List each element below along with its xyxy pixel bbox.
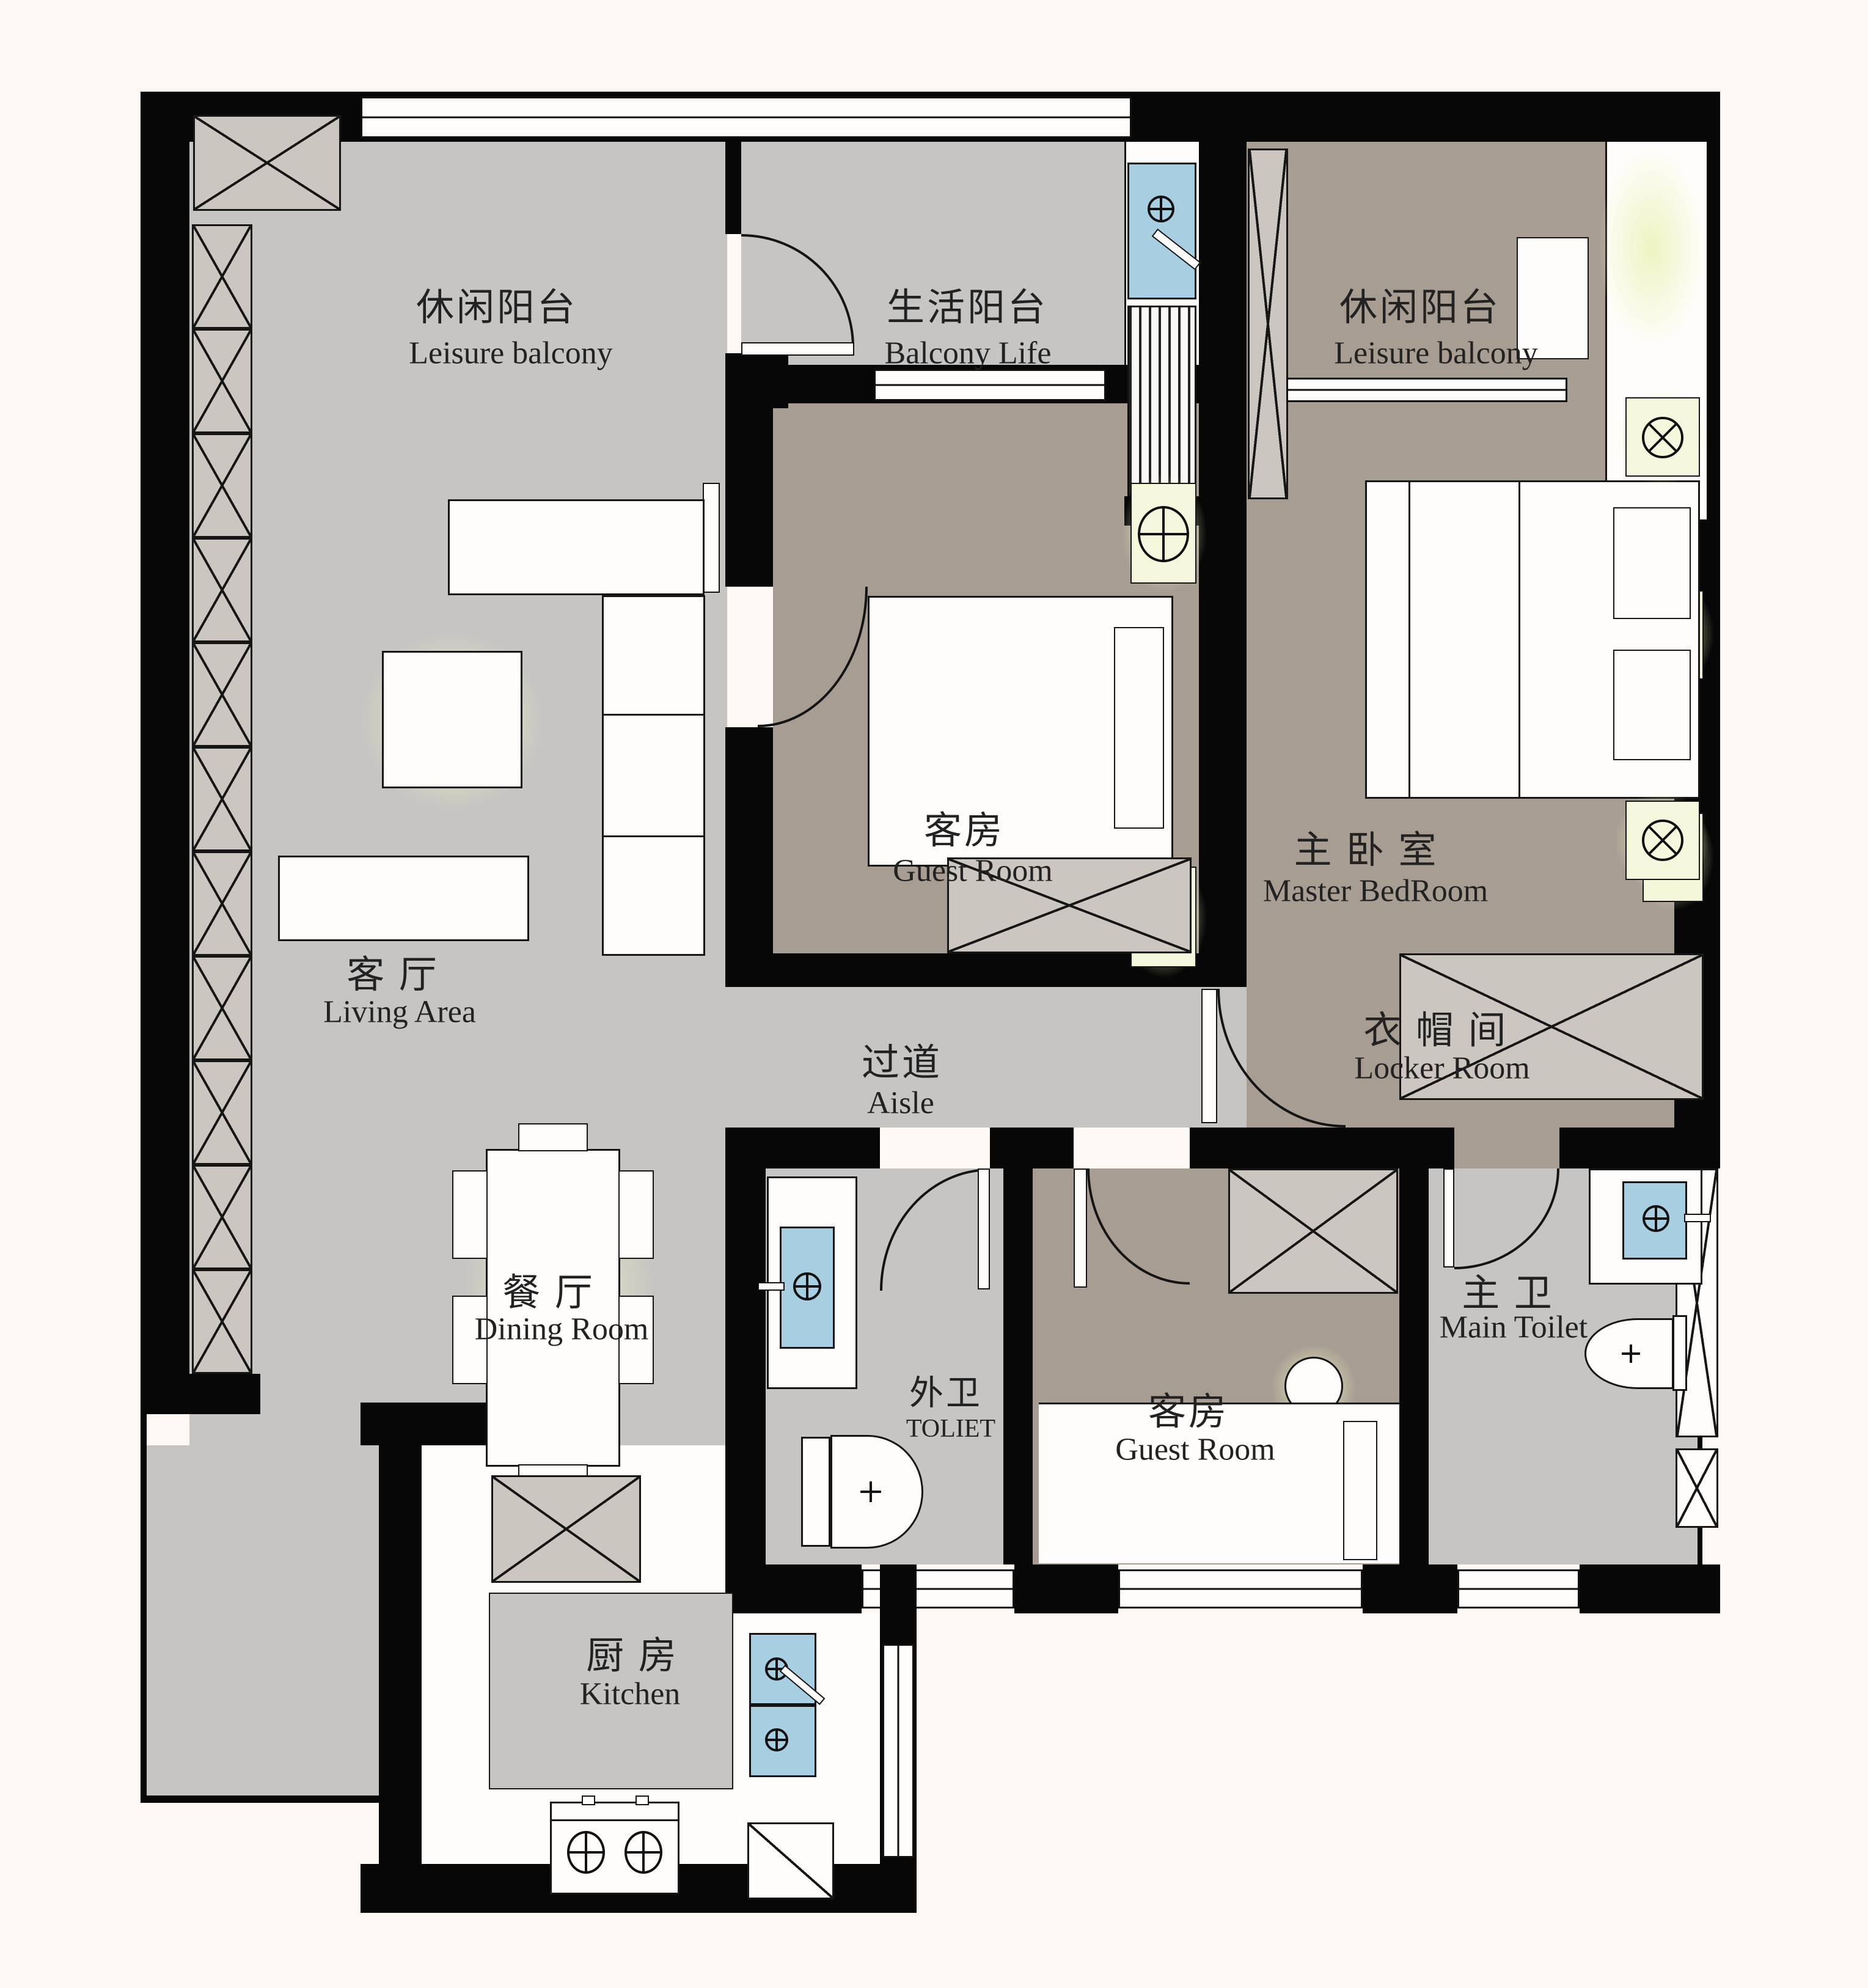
room-label-en: Leisure balcony bbox=[409, 336, 613, 372]
balcony-partition-wall bbox=[725, 142, 741, 234]
burner-icon bbox=[567, 1831, 605, 1874]
living-area-floor-lower bbox=[141, 1445, 379, 1800]
left-wall bbox=[141, 92, 189, 1395]
room-label-zh: 过道 bbox=[862, 1032, 942, 1087]
storage-box bbox=[192, 224, 252, 329]
coffee-table bbox=[382, 651, 522, 788]
faucet-icon bbox=[765, 1728, 788, 1751]
storage-box bbox=[192, 1165, 252, 1269]
sofa-top-section bbox=[448, 499, 705, 595]
bed-line bbox=[1408, 482, 1410, 797]
dining-chair bbox=[518, 1123, 588, 1151]
hall-south-wall-a bbox=[725, 1128, 880, 1168]
guest2-maintoilet-wall bbox=[1399, 1168, 1429, 1564]
kitchen-east-window bbox=[882, 1644, 914, 1858]
left-wall-lower-line bbox=[141, 1414, 147, 1803]
room-label-zh: 主 卫 bbox=[1462, 1262, 1555, 1317]
storage-box bbox=[192, 1060, 252, 1165]
tap-icon bbox=[1684, 1214, 1711, 1222]
toilet-guest2-wall bbox=[1003, 1168, 1033, 1564]
faucet-icon bbox=[1148, 196, 1174, 222]
room-label-zh: 休闲阳台 bbox=[1339, 276, 1501, 331]
bottom-wall-seg4 bbox=[1580, 1564, 1720, 1613]
storage-box bbox=[192, 1269, 252, 1374]
shaft-small bbox=[1676, 1448, 1718, 1528]
faucet-icon bbox=[793, 1272, 821, 1300]
room-label-en: Kitchen bbox=[580, 1676, 681, 1712]
room-label-en: Main Toilet bbox=[1440, 1310, 1588, 1346]
storage-box-large bbox=[193, 115, 341, 211]
sofa-side-section bbox=[602, 595, 705, 956]
room-label-zh: 厨 房 bbox=[586, 1624, 679, 1679]
room-label-en: Locker Room bbox=[1354, 1051, 1529, 1087]
storage-box bbox=[192, 538, 252, 642]
room-label-zh: 休闲阳台 bbox=[416, 276, 577, 331]
guest1-west-wall-upper bbox=[725, 403, 773, 587]
balcony-column-hatch bbox=[1248, 149, 1288, 499]
main-toilet-door-leaf bbox=[1443, 1168, 1454, 1267]
tv-console bbox=[278, 856, 529, 941]
guest2-nightstand bbox=[1343, 1421, 1377, 1560]
main-toilet-tank bbox=[1672, 1315, 1687, 1391]
toilet-tank bbox=[801, 1437, 830, 1547]
guest1-west-wall-lower bbox=[725, 727, 773, 987]
room-label-en: Balcony Life bbox=[885, 336, 1052, 372]
lamp-icon bbox=[1138, 506, 1189, 562]
room-label-en: TOLIET bbox=[906, 1414, 995, 1443]
hall-south-wall-d bbox=[1559, 1128, 1720, 1168]
lamp-icon bbox=[1642, 417, 1683, 458]
room-label-en: Living Area bbox=[323, 994, 476, 1030]
stove-knob bbox=[582, 1795, 595, 1805]
dining-chair bbox=[452, 1170, 488, 1259]
guest2-wardrobe bbox=[1228, 1168, 1398, 1294]
storage-box bbox=[192, 433, 252, 538]
room-label-en: Dining Room bbox=[475, 1311, 649, 1348]
room-label-zh: 客房 bbox=[924, 799, 1005, 854]
storage-box bbox=[192, 956, 252, 1060]
guest2-door-leaf bbox=[1074, 1168, 1087, 1288]
tap-icon bbox=[758, 1282, 785, 1291]
bottom-left-line bbox=[141, 1795, 385, 1803]
dining-chair bbox=[618, 1170, 654, 1259]
bottom-window2 bbox=[1118, 1569, 1363, 1608]
kitchen-west-wall bbox=[379, 1403, 422, 1913]
storage-box bbox=[192, 747, 252, 851]
room-label-en: Aisle bbox=[867, 1085, 934, 1121]
storage-box bbox=[192, 642, 252, 747]
room-label-zh: 主 卧 室 bbox=[1294, 819, 1438, 874]
bottom-window3 bbox=[1457, 1569, 1580, 1608]
bottom-wall-seg2 bbox=[1014, 1564, 1118, 1613]
flush-icon bbox=[1622, 1344, 1640, 1363]
guest1-door-leaf bbox=[703, 483, 720, 593]
guest1-pillow bbox=[1114, 627, 1164, 829]
balcony-door-leaf bbox=[741, 342, 854, 356]
room-label-zh: 生活阳台 bbox=[887, 276, 1048, 331]
fridge bbox=[491, 1475, 641, 1583]
kitchen-door-panel bbox=[747, 1822, 834, 1899]
locker-door-leaf bbox=[1201, 989, 1217, 1123]
storage-box bbox=[192, 851, 252, 956]
bottom-wall-seg1 bbox=[725, 1564, 862, 1613]
drying-rack bbox=[1127, 306, 1196, 496]
room-label-zh: 衣 帽 间 bbox=[1363, 999, 1508, 1054]
bottom-wall-seg3 bbox=[1363, 1564, 1457, 1613]
master-pillow1 bbox=[1613, 507, 1691, 619]
room-label-en: Leisure balcony bbox=[1334, 336, 1538, 372]
stove-knob bbox=[635, 1795, 649, 1805]
left-wall-cap bbox=[141, 1374, 260, 1414]
top-window-band bbox=[361, 97, 1132, 138]
guest1-bed bbox=[868, 596, 1173, 867]
burner-icon bbox=[624, 1831, 662, 1874]
room-label-zh: 餐 厅 bbox=[502, 1261, 595, 1316]
faucet-icon bbox=[1643, 1205, 1669, 1232]
room-label-zh: 客房 bbox=[1148, 1381, 1229, 1436]
toilet-door-leaf bbox=[978, 1168, 990, 1289]
room-label-en: Guest Room bbox=[1115, 1432, 1275, 1468]
bay-window-glow bbox=[1598, 147, 1705, 348]
lamp-icon bbox=[1642, 820, 1683, 861]
room-label-zh: 客 厅 bbox=[346, 944, 439, 999]
storage-box bbox=[192, 329, 252, 433]
room-label-zh: 外卫 bbox=[909, 1366, 983, 1415]
floor-plan: 休闲阳台 Leisure balcony 生活阳台 Balcony Life 休… bbox=[0, 0, 1868, 1988]
master-balcony-slider bbox=[1286, 378, 1567, 402]
bed-line bbox=[1518, 482, 1520, 797]
hall-south-wall-c bbox=[1190, 1128, 1454, 1168]
washing-machine bbox=[1127, 163, 1196, 299]
stove-line bbox=[552, 1819, 678, 1821]
guest1-north-window bbox=[874, 369, 1106, 401]
master-pillow2 bbox=[1613, 650, 1691, 760]
room-label-en: Master BedRoom bbox=[1263, 873, 1488, 909]
flush-icon bbox=[860, 1481, 881, 1502]
master-bed bbox=[1365, 480, 1700, 799]
hall-south-wall-b bbox=[990, 1128, 1074, 1168]
toilet-west-wall bbox=[725, 1168, 766, 1564]
room-label-en: Guest Room bbox=[893, 853, 1052, 889]
